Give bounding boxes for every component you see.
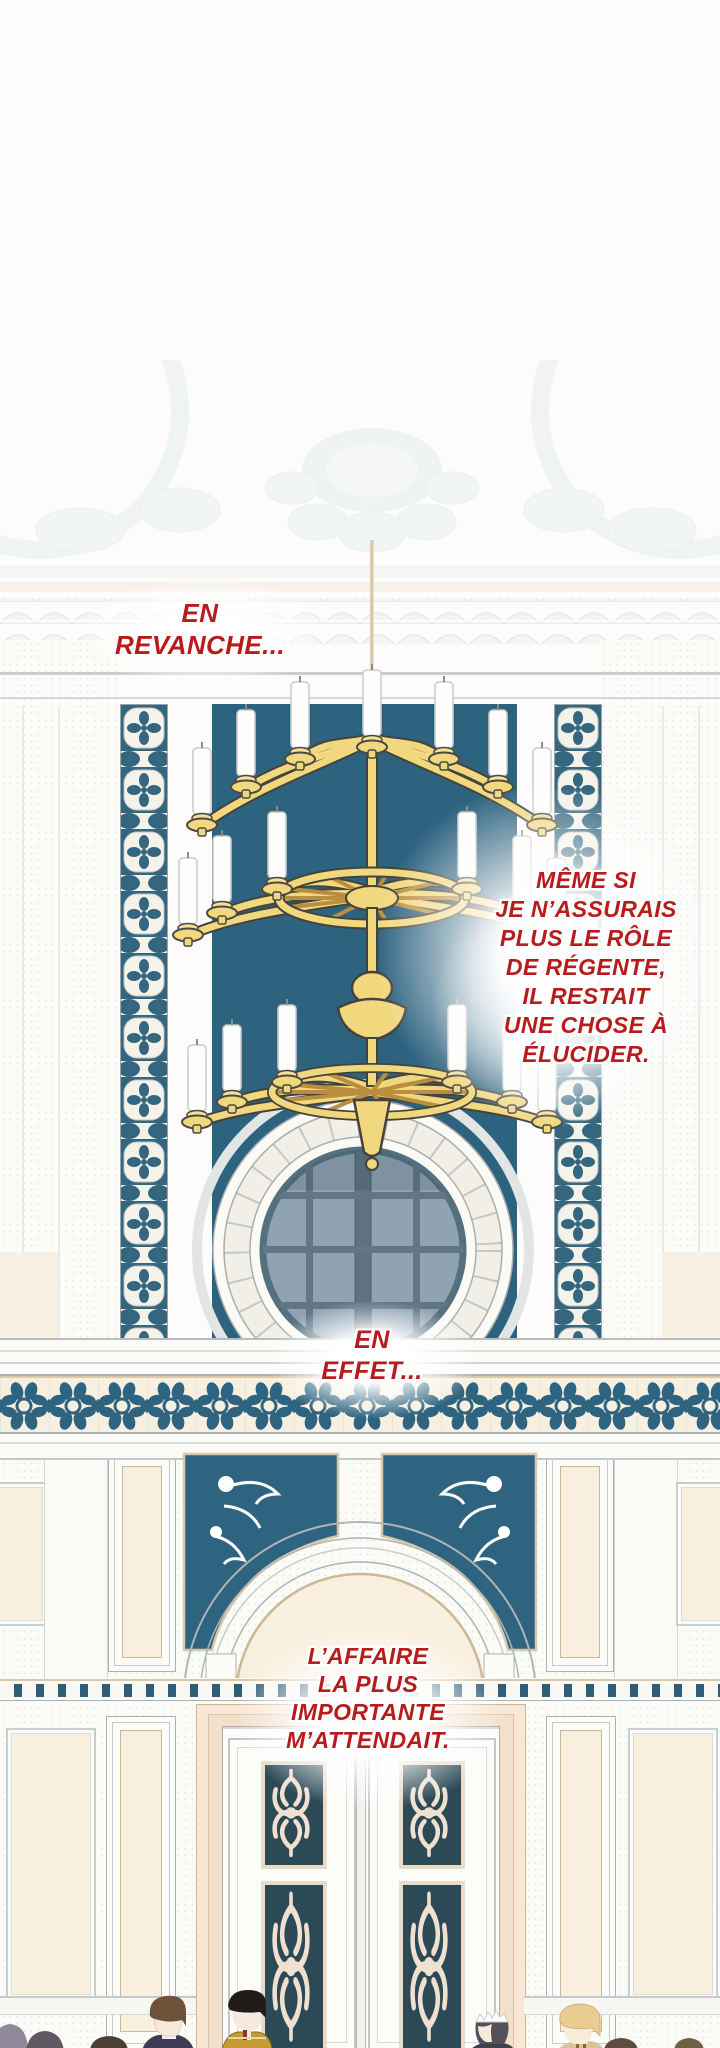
caption-line: EFFET... [292, 1356, 452, 1387]
caption-line: DE RÉGENTE, [468, 953, 704, 982]
caption-affaire: L’AFFAIRE LA PLUS IMPORTANTE M’ATTENDAIT… [258, 1642, 478, 1754]
wainscot-right [524, 1996, 720, 2015]
panel-strip-upper-right-inner [560, 1466, 600, 1658]
figure-blonde [556, 2000, 604, 2048]
figure-maid [470, 2006, 514, 2048]
wall-panel-lower-far-left [6, 1728, 96, 2000]
figure-head-3 [90, 2036, 128, 2048]
panel-strip-lower-right-inner [560, 1730, 602, 2032]
caption-line: M’ATTENDAIT. [258, 1726, 478, 1754]
caption-line: ÉLUCIDER. [468, 1040, 704, 1069]
figure-officer-gold [222, 1988, 272, 2048]
pilaster-right [614, 1460, 678, 1678]
door-panel-lower-right [400, 1882, 464, 2048]
caption-effet: EN EFFET... [292, 1325, 452, 1387]
caption-line: EN [100, 597, 300, 629]
caption-line: MÊME SI [468, 866, 704, 895]
upper-wall-left [0, 640, 120, 1340]
panel-strip-upper-left-inner [122, 1466, 162, 1658]
caption-regente: MÊME SI JE N’ASSURAIS PLUS LE RÔLE DE RÉ… [468, 866, 704, 1069]
caption-line: REVANCHE... [100, 629, 300, 661]
caption-line: JE N’ASSURAIS [468, 895, 704, 924]
figure-head-8 [604, 2038, 638, 2048]
figure-head-far-left [0, 2022, 28, 2048]
wall-panel-upper-far-left [0, 1482, 48, 1626]
caption-line: L’AFFAIRE [258, 1642, 478, 1670]
pilaster-left [44, 1460, 108, 1678]
figure-courtier-brown [142, 1994, 194, 2048]
caption-line: IMPORTANTE [258, 1698, 478, 1726]
caption-line: UNE CHOSE À [468, 1011, 704, 1040]
caption-line: EN [292, 1325, 452, 1356]
panel-strip-lower-left-inner [120, 1730, 162, 2032]
caption-revanche: EN REVANCHE... [100, 597, 300, 661]
cream-wall-left [0, 1252, 58, 1342]
caption-line: PLUS LE RÔLE [468, 924, 704, 953]
caption-line: LA PLUS [258, 1670, 478, 1698]
cream-wall-right [662, 1252, 720, 1342]
wall-panel-upper-far-right [676, 1482, 720, 1626]
webtoon-panel: EN REVANCHE... MÊME SI JE N’ASSURAIS PLU… [0, 0, 720, 2048]
wall-seam-left [22, 706, 60, 1336]
figure-head-2 [26, 2030, 64, 2048]
wall-panel-lower-far-right [628, 1728, 718, 2000]
caption-line: IL RESTAIT [468, 982, 704, 1011]
figure-head-9 [674, 2038, 704, 2048]
